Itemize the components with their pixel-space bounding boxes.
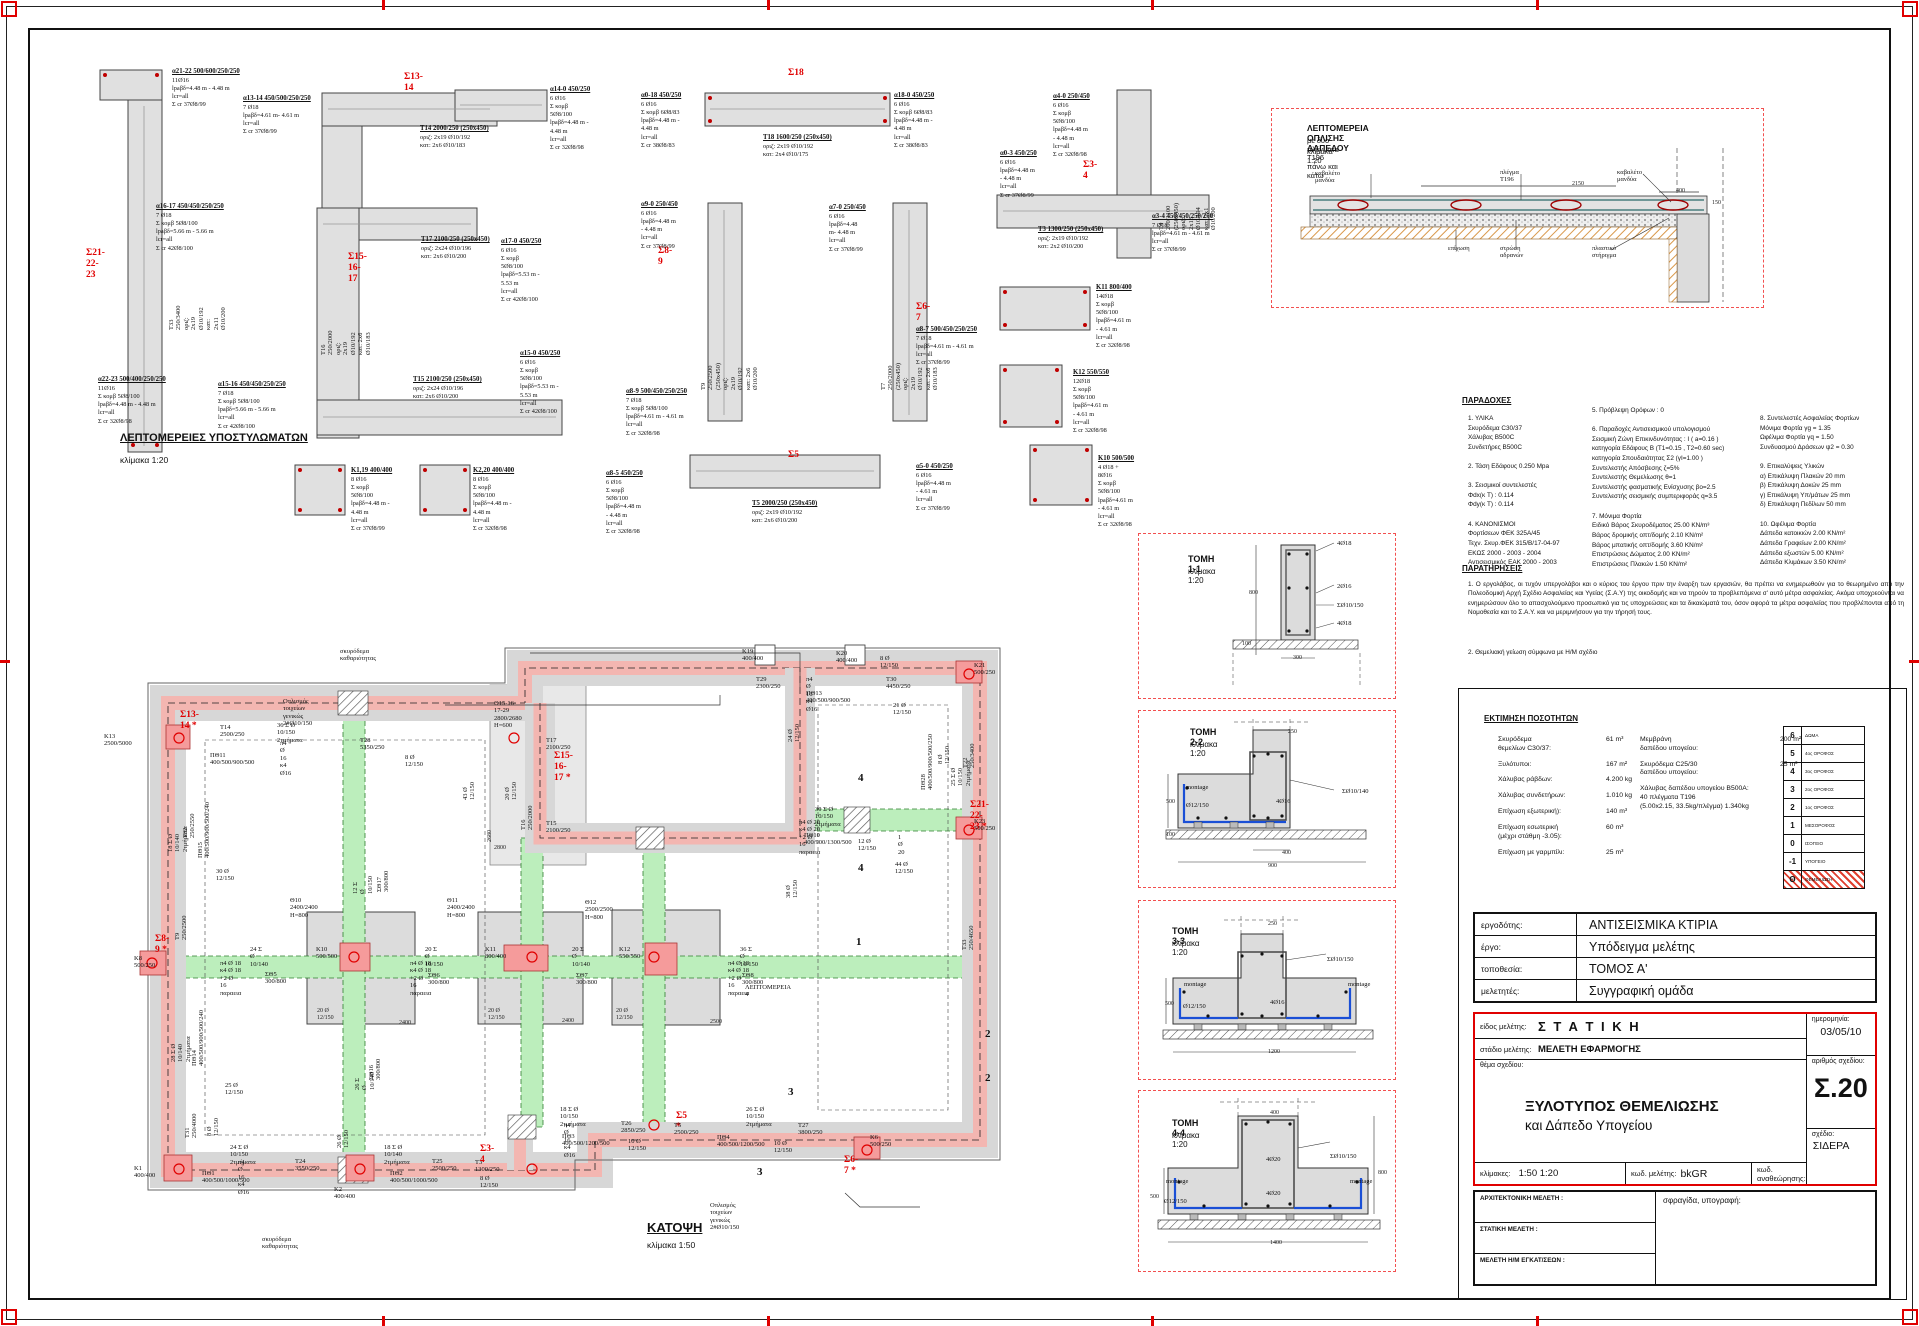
annotation-title: K11 800/400	[1096, 284, 1132, 293]
annotation-title: K12 550/550	[1073, 369, 1109, 378]
plan-label: 18 Σ Ø 10/140 2τμήματα	[167, 826, 189, 852]
section-label: Ø12/150	[1164, 1198, 1187, 1205]
detail-label: Σ3-4	[1083, 160, 1097, 182]
plan-label: 8 Ø 12/150	[880, 655, 898, 670]
title-block-value: Συγγραφική ομάδα	[1577, 984, 1694, 998]
annotation-lines: 6 Ø16 Σ κομβ 6Ø8/83 lpaβδ=4.48 m - 4.48 …	[894, 101, 934, 150]
plan-label: K19 400/400	[742, 648, 763, 663]
plan-label: 12 Σ Ø 10/150	[352, 876, 374, 894]
plan-label: K10 500/500	[316, 946, 337, 961]
floor-detail-label: 400	[1676, 188, 1685, 195]
plan-label: 20 Ø 12/150	[488, 1008, 505, 1022]
plan-label: ΠΘ13 400/500/900/500	[806, 690, 850, 705]
section-label: 1200	[1268, 1049, 1280, 1056]
plan-label: T15 2100/250	[546, 820, 571, 835]
plan-scale: κλίμακα 1:50	[647, 1240, 695, 1250]
detail-annotation: α0-18 450/250 6 Ø16 Σ κομβ 6Ø8/83 lpaβδ=…	[641, 92, 681, 150]
plan-label: K2 400/400	[334, 1186, 355, 1201]
title-block-value: ΑΝΤΙΣΕΙΣΜΙΚΑ ΚΤΙΡΙΑ	[1577, 918, 1718, 932]
storey-number: Θ	[1784, 871, 1802, 888]
study-kind-label: είδος μελέτης:	[1475, 1022, 1538, 1031]
storey-number: 5	[1784, 745, 1802, 762]
edge-tick-icon	[1909, 660, 1919, 663]
plan-label: 24 Σ Ø 10/140	[250, 946, 268, 968]
study-code-label: κωδ. μελέτης:	[1626, 1169, 1676, 1178]
detail-annotation: K1,19 400/400 8 Ø16 Σ κομβ 5Ø8/100 lpaβδ…	[351, 467, 392, 533]
drawing-subject-line1: ΞΥΛΟΤΥΠΟΣ ΘΕΜΕΛΙΩΣΗΣ	[1525, 1098, 1719, 1115]
edge-tick-icon	[1151, 1316, 1154, 1326]
section-label: montage	[1166, 1178, 1188, 1185]
architectural-study-label: ΑΡΧΙΤΕΚΤΟΝΙΚΗ ΜΕΛΕΤΗ :	[1475, 1192, 1655, 1223]
section-label: montage	[1184, 981, 1206, 988]
storey-number: 6	[1784, 727, 1802, 744]
plan-label: σκυρόδεμα καθαριότητας	[262, 1236, 298, 1251]
study-stage-label: στάδιο μελέτης:	[1475, 1045, 1538, 1054]
plan-label: T24 3550/250	[295, 1158, 320, 1173]
floor-detail-label: επίχωση	[1448, 245, 1470, 252]
stamp-signature-label: σφραγίδα, υπογραφή:	[1656, 1192, 1875, 1284]
plan-label: 4	[858, 772, 864, 785]
storey-label: ΘΕΜΕΛΙΩΣΗ	[1802, 871, 1864, 888]
detail-annotation: α0-3 450/250 6 Ø16 lpaβδ=4.48 m - 4.48 m…	[1000, 150, 1037, 200]
plan-label: 2680	[487, 830, 494, 842]
plan-label: K20 400/400	[836, 650, 857, 665]
quantity-value: 1.010 kg	[1606, 792, 1632, 801]
plan-label: Θ10 2400/2400 H=800	[290, 897, 318, 919]
section-label: Ø12/150	[1186, 802, 1209, 809]
annotation-title: α13-14 450/500/250/250	[243, 95, 311, 104]
storey-row: 4 3ος ΟΡΟΦΟΣ	[1784, 763, 1864, 781]
storey-row: Θ ΘΕΜΕΛΙΩΣΗ	[1784, 871, 1864, 888]
annotation-title: α15-16 450/450/250/250	[218, 381, 286, 390]
annotation-lines: 8 Ø16 Σ κομβ 5Ø8/100 lpaβδ=4.48 m - 4.48…	[473, 476, 514, 533]
annotation-title: T15 2100/250 (250x450)	[413, 376, 482, 385]
edge-tick-icon	[0, 660, 10, 663]
annotation-title: α21-22 500/600/250/250	[172, 68, 240, 77]
section-label: 100	[1242, 641, 1251, 648]
detail-label: T33 250/3400 οριζ: 2x19 Ø10/192 κατ: 2x1…	[168, 305, 228, 330]
plan-label: 3	[757, 1166, 763, 1179]
section-label: 4Ø18	[1337, 540, 1351, 547]
section-label: 2Ø16	[1337, 583, 1351, 590]
edge-tick-icon	[382, 0, 385, 10]
mep-study-label: ΜΕΛΕΤΗ Η/Μ ΕΓΚΑΤ/ΣΕΩΝ :	[1475, 1254, 1655, 1284]
edge-tick-icon	[767, 0, 770, 10]
section-label: 500	[1165, 1001, 1174, 1008]
section-label: 4Ø20	[1266, 1156, 1280, 1163]
storey-row: -1 ΥΠΟΓΕΙΟ	[1784, 853, 1864, 871]
detail-label: Σ6-7	[916, 302, 930, 324]
detail-label: Σ21-22-23	[86, 248, 105, 281]
section-label: 4Ø16	[1270, 999, 1284, 1006]
title-block-value: Υπόδειγμα μελέτης	[1577, 940, 1695, 954]
section-label: montage	[1350, 1178, 1372, 1185]
storey-number: 3	[1784, 781, 1802, 798]
detail-annotation: α15-0 450/250 6 Ø16 Σ κομβ 5Ø8/100 lpaβδ…	[520, 350, 560, 416]
detail-annotation: T15 2100/250 (250x450) οριζ: 2x24 Ø10/19…	[413, 376, 482, 401]
annotation-lines: 7 Ø18 lpaβδ=4.61 m - 4.61 m lcr=all Σ cr…	[1152, 222, 1213, 255]
detail-annotation: K12 550/550 12Ø18 Σ κομβ 5Ø8/100 lpaβδ=4…	[1073, 369, 1109, 435]
plan-label: 8 Ø 12/150	[480, 1175, 498, 1190]
storey-label: 3ος ΟΡΟΦΟΣ	[1802, 763, 1864, 780]
drawing-subject-line2: και Δάπεδο Υπογείου	[1525, 1118, 1652, 1133]
quantity-label: Χάλυβας συνδετήρων:	[1498, 792, 1606, 801]
plan-label: ΠΘ3 400/500/1200/500	[562, 1133, 610, 1148]
section-2-2-drawing	[1138, 710, 1394, 886]
title-block-row: τοποθεσία: ΤΟΜΟΣ Α'	[1475, 958, 1875, 980]
plan-label: T31 250/4000	[184, 1113, 199, 1138]
title-block-info: εργοδότης: ΑΝΤΙΣΕΙΣΜΙΚΑ ΚΤΙΡΙΑ έργο: Υπό…	[1473, 912, 1877, 1003]
annotation-lines: 7 Ø18 Σ κομβ 5Ø8/100 lpaβδ=5.66 m - 5.66…	[156, 212, 224, 253]
title-block-signatures: ΑΡΧΙΤΕΚΤΟΝΙΚΗ ΜΕΛΕΤΗ : ΣΤΑΤΙΚΗ ΜΕΛΕΤΗ : …	[1473, 1190, 1877, 1286]
section-label: ΣØ10/150	[1330, 1153, 1357, 1160]
storey-number: 0	[1784, 835, 1802, 852]
section-label: 1400	[1270, 1240, 1282, 1247]
plan-label: 3	[788, 1086, 794, 1099]
annotation-title: T5 2000/250 (250x450)	[752, 500, 817, 509]
quantity-label: Χάλυβας ράβδων:	[1498, 776, 1606, 785]
annotation-title: α15-0 450/250	[520, 350, 560, 359]
drawing-type: ΣΙΔΕΡΑ	[1807, 1140, 1875, 1152]
annotation-title: T18 1600/250 (250x450)	[763, 134, 832, 143]
annotation-lines: 4 Ø18 + 8Ø16 Σ κομβ 5Ø8/100 lpaβδ=4.61 m…	[1098, 464, 1134, 529]
annotation-title: α8-5 450/250	[606, 470, 643, 479]
section-label: 800	[1378, 1170, 1387, 1177]
plan-label: K12 550/550	[619, 946, 640, 961]
section-label: montage	[1186, 784, 1208, 791]
sheet-number: Σ.20	[1807, 1073, 1875, 1104]
annotation-title: α17-0 450/250	[501, 238, 541, 247]
detail-label: Σ13-14	[404, 72, 423, 94]
annotation-title: α0-18 450/250	[641, 92, 681, 101]
plan-label: ΠΘ15 400/500/900/500/240	[197, 802, 212, 858]
plan-label: 18 Σ Ø 10/140 2τμήματα	[384, 1144, 410, 1166]
note-item-1: 1. Ο εργολάβος, οι τυχόν υπεργολάβοι και…	[1468, 580, 1904, 617]
section-label: 4Ø18	[1337, 620, 1351, 627]
plan-label: ΠΘ14 400/500/900/500/240	[191, 1010, 206, 1066]
detail-annotation: K2,20 400/400 8 Ø16 Σ κομβ 5Ø8/100 lpaβδ…	[473, 467, 514, 533]
annotation-lines: 11Ø16 lpaβδ=4.48 m - 4.48 m lcr=all Σ cr…	[172, 77, 240, 110]
date-label: ημερομηνία:	[1807, 1014, 1875, 1023]
detail-annotation: α3-4 450/450/250/250 7 Ø18 lpaβδ=4.61 m …	[1152, 213, 1213, 255]
annotation-lines: 7 Ø18 Σ κομβ 5Ø8/100 lpaβδ=4.61 m - 4.61…	[626, 397, 687, 438]
quantity-row: Επίχωση εσωτερική (μέχρι στάθμη -3.05): …	[1498, 824, 1678, 842]
plan-label: T33 250/4650	[961, 925, 976, 950]
section-label: ΣØ10/140	[1342, 788, 1369, 795]
plan-label: Σ13-14 *	[180, 710, 199, 732]
plan-label: Θ12 2500/2500 H=800	[585, 899, 613, 921]
plan-label: ΣΘ17 300/800	[376, 871, 391, 892]
plan-label: ΠΘ28 400/500/900/500/250	[920, 734, 935, 790]
plan-label: T9 250/2500	[174, 915, 189, 940]
plan-label: Οπλισμός τοιχείων γενικώς 2#Ø10/150	[710, 1202, 739, 1232]
floor-detail-label: 150	[1712, 200, 1721, 207]
plan-label: T17 2100/250	[546, 737, 571, 752]
annotation-lines: 8 Ø16 Σ κομβ 5Ø8/100 lpaβδ=4.48 m - 4.48…	[351, 476, 392, 533]
annotation-title: T3 1300/250 (250x450)	[1038, 226, 1103, 235]
plan-label: 28 Σ Ø 10/140 2τμήματα	[170, 1036, 192, 1062]
sheet-number-label: αριθμός σχεδίου:	[1807, 1056, 1875, 1065]
annotation-title: α8-9 500/450/250/250	[626, 388, 687, 397]
floor-detail-label: στρώση αδρανών	[1500, 245, 1523, 260]
floor-detail-label: πλέγμα Τ196	[1500, 169, 1519, 184]
plan-label: T16 250/2000	[520, 805, 535, 830]
storey-row: 6 ΔΩΜΑ	[1784, 727, 1864, 745]
annotation-lines: οριζ: 2x19 Ø10/192 κατ: 2x4 Ø10/175	[763, 143, 832, 159]
section-label: Ø12/150	[1183, 1003, 1206, 1010]
edge-tick-icon	[1151, 0, 1154, 10]
title-block-key: έργο:	[1475, 936, 1577, 957]
plan-label: 24 Ø 12/150	[787, 724, 802, 742]
plan-label: T29 2300/250	[756, 676, 781, 691]
crop-mark-icon	[1902, 1309, 1918, 1325]
annotation-title: T14 2000/250 (250x450)	[420, 125, 489, 134]
plan-label: 8 Ø 12/150	[405, 754, 423, 769]
annotation-title: T17 2100/250 (250x450)	[421, 236, 490, 245]
quantity-value: 4.200 kg	[1606, 776, 1632, 785]
title-block-row: έργο: Υπόδειγμα μελέτης	[1475, 936, 1875, 958]
quantity-value: 167 m²	[1606, 761, 1627, 770]
plan-title: ΚΑΤΟΨΗ	[647, 1220, 702, 1235]
annotation-lines: οριζ: 2x19 Ø10/192 κατ: 2x6 Ø10/200	[752, 509, 817, 525]
plan-label: 20 Ø 12/150	[616, 1008, 633, 1022]
drawing-type-label: σχέδιο:	[1807, 1129, 1875, 1138]
annotation-lines: 11Ø16 Σ κομβ 5Ø8/100 lpaβδ=4.48 m - 4.48…	[98, 385, 166, 426]
plan-label: T30 4450/250	[886, 676, 911, 691]
annotation-lines: 6 Ø16 lpaβδ=4.48 m - 4.48 m lcr=all Σ cr…	[641, 210, 678, 251]
annotation-lines: οριζ: 2x24 Ø10/196 κατ: 2x6 Ø10/200	[421, 245, 490, 261]
study-code: bkGR	[1680, 1168, 1707, 1180]
section-label: 500	[1166, 799, 1175, 806]
detail-annotation: α8-5 450/250 6 Ø16 Σ κομβ 5Ø8/100 lpaβδ=…	[606, 470, 643, 536]
detail-annotation: α14-0 450/250 6 Ø16 Σ κομβ 5Ø8/100 lpaβδ…	[550, 86, 590, 152]
annotation-lines: 7 Ø18 lpaβδ=4.61 m- 4.61 m lcr=all Σ cr …	[243, 104, 311, 137]
detail-label: T16 250/2000 οριζ: 2x19 Ø10/192 κατ: 2x6…	[320, 330, 372, 355]
quantities-title: ΕΚΤΙΜΗΣΗ ΠΟΣΟΤΗΤΩΝ	[1484, 714, 1578, 723]
title-block-key: μελετητές:	[1475, 980, 1577, 1001]
plan-label: 10 Ø 12/150	[774, 1140, 792, 1155]
annotation-title: K10 500/500	[1098, 455, 1134, 464]
edge-tick-icon	[1536, 1316, 1539, 1326]
plan-label: ΣΘ7 300/800	[576, 972, 597, 987]
annotation-title: α9-0 250/450	[641, 201, 678, 210]
plan-label: 20 Ø 12/150	[504, 782, 519, 800]
storey-row: 3 2ος ΟΡΟΦΟΣ	[1784, 781, 1864, 799]
quantity-label: Σκυρόδεμα θεμελίων C30/37:	[1498, 736, 1606, 754]
plan-label: 10 Ø 12/150	[628, 1138, 646, 1153]
plan-label: Θ11 2400/2400 H=800	[447, 897, 475, 919]
plan-label: T27 3800/250	[798, 1122, 823, 1137]
plan-label: 4	[858, 862, 864, 875]
note-item-2: 2. Θεμελιακή γείωση σύμφωνα με Η/Μ σχέδι…	[1468, 648, 1904, 657]
column-details-scale: κλίμακα 1:20	[120, 455, 168, 465]
detail-annotation: T14 2000/250 (250x450) οριζ: 2x19 Ø10/19…	[420, 125, 489, 150]
quantity-value: 60 m³	[1606, 824, 1623, 842]
detail-annotation: α17-0 450/250 6 Ø16 Σ κομβ 5Ø8/100 lpaβδ…	[501, 238, 541, 304]
detail-annotation: α22-23 500/400/250/250 11Ø16 Σ κομβ 5Ø8/…	[98, 376, 166, 426]
plan-label: 38 Ø 12/150	[785, 880, 800, 898]
section-label: 400	[1282, 850, 1291, 857]
storey-label: ΥΠΟΓΕΙΟ	[1802, 853, 1864, 870]
section-label: 4Ø16	[1276, 798, 1290, 805]
detail-label: Σ15-16-17	[348, 252, 367, 285]
column-details-title: ΛΕΠΤΟΜΕΡΕΙΕΣ ΥΠΟΣΤΥΛΩΜΑΤΩΝ	[120, 432, 308, 444]
plan-label: 25 Ø 12/150	[225, 1082, 243, 1097]
section-label: 900	[1268, 863, 1277, 870]
section-label: ΣØ10/150	[1337, 602, 1364, 609]
revision-code-label: κωδ. αναθεώρησης:	[1752, 1165, 1806, 1183]
annotation-lines: οριζ: 2x19 Ø10/192 κατ: 2x6 Ø10/183	[420, 134, 489, 150]
plan-label: 2	[985, 1072, 991, 1085]
storey-label: ΔΩΜΑ	[1802, 727, 1864, 744]
plan-label: T22 250/3400	[962, 743, 977, 768]
plan-label: 2500	[710, 1019, 722, 1026]
floor-detail-label: πλαστικό στήριγμα	[1592, 245, 1616, 260]
plan-label: Σ8-9 *	[155, 934, 169, 956]
storey-label: ΜΕΣΟΡΟΦΟΣ	[1802, 817, 1864, 834]
storey-row: 1 ΜΕΣΟΡΟΦΟΣ	[1784, 817, 1864, 835]
annotation-lines: 6 Ø16 lpaβδ=4.48 m - 4.61 m lcr=all Σ cr…	[916, 472, 953, 513]
detail-annotation: T17 2100/250 (250x450) οριζ: 2x24 Ø10/19…	[421, 236, 490, 261]
plan-label: ΠΘ10 400/900/1300/500	[804, 832, 852, 847]
plan-label: π4 Ø 18 κ4 Ø 18 +2 Ø 16 παραεια	[220, 960, 241, 997]
detail-annotation: T5 2000/250 (250x450) οριζ: 2x19 Ø10/192…	[752, 500, 817, 525]
plan-label: ΠΘ1 400/500/1000/500	[202, 1170, 250, 1185]
plan-label: 1	[856, 936, 862, 949]
annotation-title: α8-7 500/450/250/250	[916, 326, 977, 335]
assumptions-col1: 1. ΥΛΙΚΑ Σκυρόδεμα C30/37 Χάλυβας B500C …	[1468, 414, 1588, 568]
plan-label: ΠΘ4 400/500/1200/500	[717, 1134, 765, 1149]
plan-label: 1 Ø 20	[898, 834, 905, 856]
plan-label: 2400	[399, 1020, 411, 1027]
storey-number: 2	[1784, 799, 1802, 816]
assumptions-title: ΠΑΡΑΔΟΧΕΣ	[1462, 396, 1511, 405]
floor-detail-label: 2150	[1572, 181, 1584, 188]
plan-label: 21 Ø 12/150	[893, 702, 911, 717]
annotation-title: α3-4 450/450/250/250	[1152, 213, 1213, 222]
plan-label: 8 Ø 12/150	[937, 746, 952, 764]
plan-label: ΣΘ6 300/800	[428, 972, 449, 987]
detail-annotation: α7-0 250/450 6 Ø16 lpaβδ=4.48 m- 4.48 m …	[829, 204, 866, 254]
floor-detail-label: καβαλέτο μανδύα	[1315, 170, 1340, 185]
annotation-title: α16-17 450/450/250/250	[156, 203, 224, 212]
title-block-row: μελετητές: Συγγραφική ομάδα	[1475, 980, 1875, 1001]
annotation-title: α22-23 500/400/250/250	[98, 376, 166, 385]
detail-annotation: α15-16 450/450/250/250 7 Ø18 Σ κομβ 5Ø8/…	[218, 381, 286, 431]
annotation-lines: 12Ø18 Σ κομβ 5Ø8/100 lpaβδ=4.61 m - 4.61…	[1073, 378, 1109, 435]
annotation-lines: οριζ: 2x19 Ø10/192 κατ: 2x2 Ø10/200	[1038, 235, 1103, 251]
plan-label: Θ15-16-17-29 2800/2680 H=600	[494, 700, 522, 730]
floor-detail-label: καβαλέτο μανδύα	[1617, 169, 1642, 184]
crop-mark-icon	[1902, 1, 1918, 17]
annotation-lines: 6 Ø16 Σ κομβ 6Ø8/83 lpaβδ=4.48 m - 4.48 …	[641, 101, 681, 150]
detail-annotation: α5-0 450/250 6 Ø16 lpaβδ=4.48 m - 4.61 m…	[916, 463, 953, 513]
title-block-row: εργοδότης: ΑΝΤΙΣΕΙΣΜΙΚΑ ΚΤΙΡΙΑ	[1475, 914, 1875, 936]
detail-annotation: K11 800/400 14Ø18 Σ κομβ 5Ø8/100 lpaβδ=4…	[1096, 284, 1132, 350]
crop-mark-icon	[1, 1309, 17, 1325]
plan-label: Σ6-7 *	[844, 1155, 858, 1177]
detail-label: Σ18	[788, 68, 804, 79]
quantity-label: Σκυρόδεμα C25/30 δαπέδου υπογείου:	[1640, 761, 1780, 779]
title-block-key: τοποθεσία:	[1475, 958, 1577, 979]
detail-annotation: α21-22 500/600/250/250 11Ø16 lpaβδ=4.48 …	[172, 68, 240, 110]
plan-label: σκυρόδεμα καθαριότητας	[340, 648, 376, 663]
study-kind: Σ Τ Α Τ Ι Κ Η	[1538, 1019, 1641, 1034]
detail-annotation: T3 1300/250 (250x450) οριζ: 2x19 Ø10/192…	[1038, 226, 1103, 251]
quantity-value: 140 m³	[1606, 808, 1627, 817]
annotation-lines: 7 Ø18 Σ κομβ 5Ø8/100 lpaβδ=5.66 m - 5.66…	[218, 390, 286, 431]
section-label: 250	[1268, 921, 1277, 928]
date-value: 03/05/10	[1807, 1026, 1875, 1038]
plan-label: ΛΕΠΤΟΜΕΡΕΙΑ 4	[745, 984, 791, 999]
plan-label: 2	[985, 1028, 991, 1041]
annotation-title: α4-0 250/450	[1053, 93, 1090, 102]
plan-label: K21 500/250	[974, 662, 995, 677]
plan-label: 44 Ø 12/150	[895, 861, 913, 876]
storey-label: 2ος ΟΡΟΦΟΣ	[1802, 781, 1864, 798]
plan-label: 2800	[494, 845, 506, 852]
plan-label: 43 Ø 12/150	[462, 782, 477, 800]
crop-mark-icon	[1, 1, 17, 17]
section-label: montage	[1348, 981, 1370, 988]
notes-title: ΠΑΡΑΤΗΡΗΣΕΙΣ	[1462, 564, 1522, 573]
section-label: 500	[1150, 1194, 1159, 1201]
title-block-value: ΤΟΜΟΣ Α'	[1577, 962, 1648, 976]
detail-annotation: α16-17 450/450/250/250 7 Ø18 Σ κομβ 5Ø8/…	[156, 203, 224, 253]
section-label: 250	[1288, 729, 1297, 736]
annotation-title: K2,20 400/400	[473, 467, 514, 476]
section-label: κλίμακα 1:20	[1172, 939, 1200, 957]
plan-label: T26 2850/250	[621, 1120, 646, 1135]
section-label: κλίμακα 1:20	[1172, 1131, 1200, 1149]
plan-label: ΠΘ2 400/500/1000/500	[390, 1170, 438, 1185]
detail-annotation: T18 1600/250 (250x450) οριζ: 2x19 Ø10/19…	[763, 134, 832, 159]
section-label: 300	[1293, 655, 1302, 662]
quantity-label: Επίχωση εσωτερική (μέχρι στάθμη -3.05):	[1498, 824, 1606, 842]
title-block-main: είδος μελέτης: Σ Τ Α Τ Ι Κ Η στάδιο μελέ…	[1473, 1012, 1877, 1186]
annotation-lines: 6 Ø16 Σ κομβ 5Ø8/100 lpaβδ=5.53 m - 5.53…	[520, 359, 560, 416]
plan-label: K23 500/250	[974, 818, 995, 833]
plan-label: 26 Σ Ø 10/150 2τμήματα	[746, 1106, 772, 1128]
plan-label: ΣΘ5 300/800	[265, 971, 286, 986]
storey-number: 4	[1784, 763, 1802, 780]
section-label: ΣØ10/150	[1327, 956, 1354, 963]
quantity-value: 61 m³	[1606, 736, 1623, 754]
storey-row: 5 4ος ΟΡΟΦΟΣ	[1784, 745, 1864, 763]
quantity-value: 25 m³	[1606, 849, 1623, 858]
plan-label: Σ3-4	[480, 1144, 494, 1166]
plan-label: 26 Ø 12/150	[336, 1130, 351, 1148]
plan-label: 30 Ø 12/150	[216, 868, 234, 883]
annotation-lines: 6 Ø16 Σ κομβ 5Ø8/100 lpaβδ=5.53 m - 5.53…	[501, 247, 541, 304]
section-1-1-drawing	[1138, 533, 1394, 697]
annotation-lines: οριζ: 2x24 Ø10/196 κατ: 2x6 Ø10/200	[413, 385, 482, 401]
annotation-title: K1,19 400/400	[351, 467, 392, 476]
annotation-lines: 6 Ø16 lpaβδ=4.48 m - 4.48 m lcr=all Σ cr…	[1000, 159, 1037, 200]
plan-label: 12 Ø 12/150	[858, 838, 876, 853]
annotation-title: α14-0 450/250	[550, 86, 590, 95]
annotation-title: α18-0 450/250	[894, 92, 934, 101]
detail-label: T9 250/2500 (250x450) οριζ: 2x19 Ø10/192…	[700, 363, 760, 390]
annotation-title: α0-3 450/250	[1000, 150, 1037, 159]
section-label: κλίμακα 1:20	[1190, 740, 1218, 758]
detail-annotation: α8-7 500/450/250/250 7 Ø18 lpaβδ=4.61 m …	[916, 326, 977, 368]
drawing-sheet: ΛΕΠΤΟΜΕΡΕΙΕΣ ΥΠΟΣΤΥΛΩΜΑΤΩΝ κλίμακα 1:20 …	[0, 0, 1919, 1326]
storey-label: ΙΣΟΓΕΙΟ	[1802, 835, 1864, 852]
annotation-lines: 6 Ø16 Σ κομβ 5Ø8/100 lpaβδ=4.48 m - 4.48…	[606, 479, 643, 536]
annotation-lines: 6 Ø16 Σ κομβ 5Ø8/100 lpaβδ=4.48 m - 4.48…	[1053, 102, 1090, 159]
study-stage: ΜΕΛΕΤΗ ΕΦΑΡΜΟΓΗΣ	[1538, 1044, 1641, 1055]
